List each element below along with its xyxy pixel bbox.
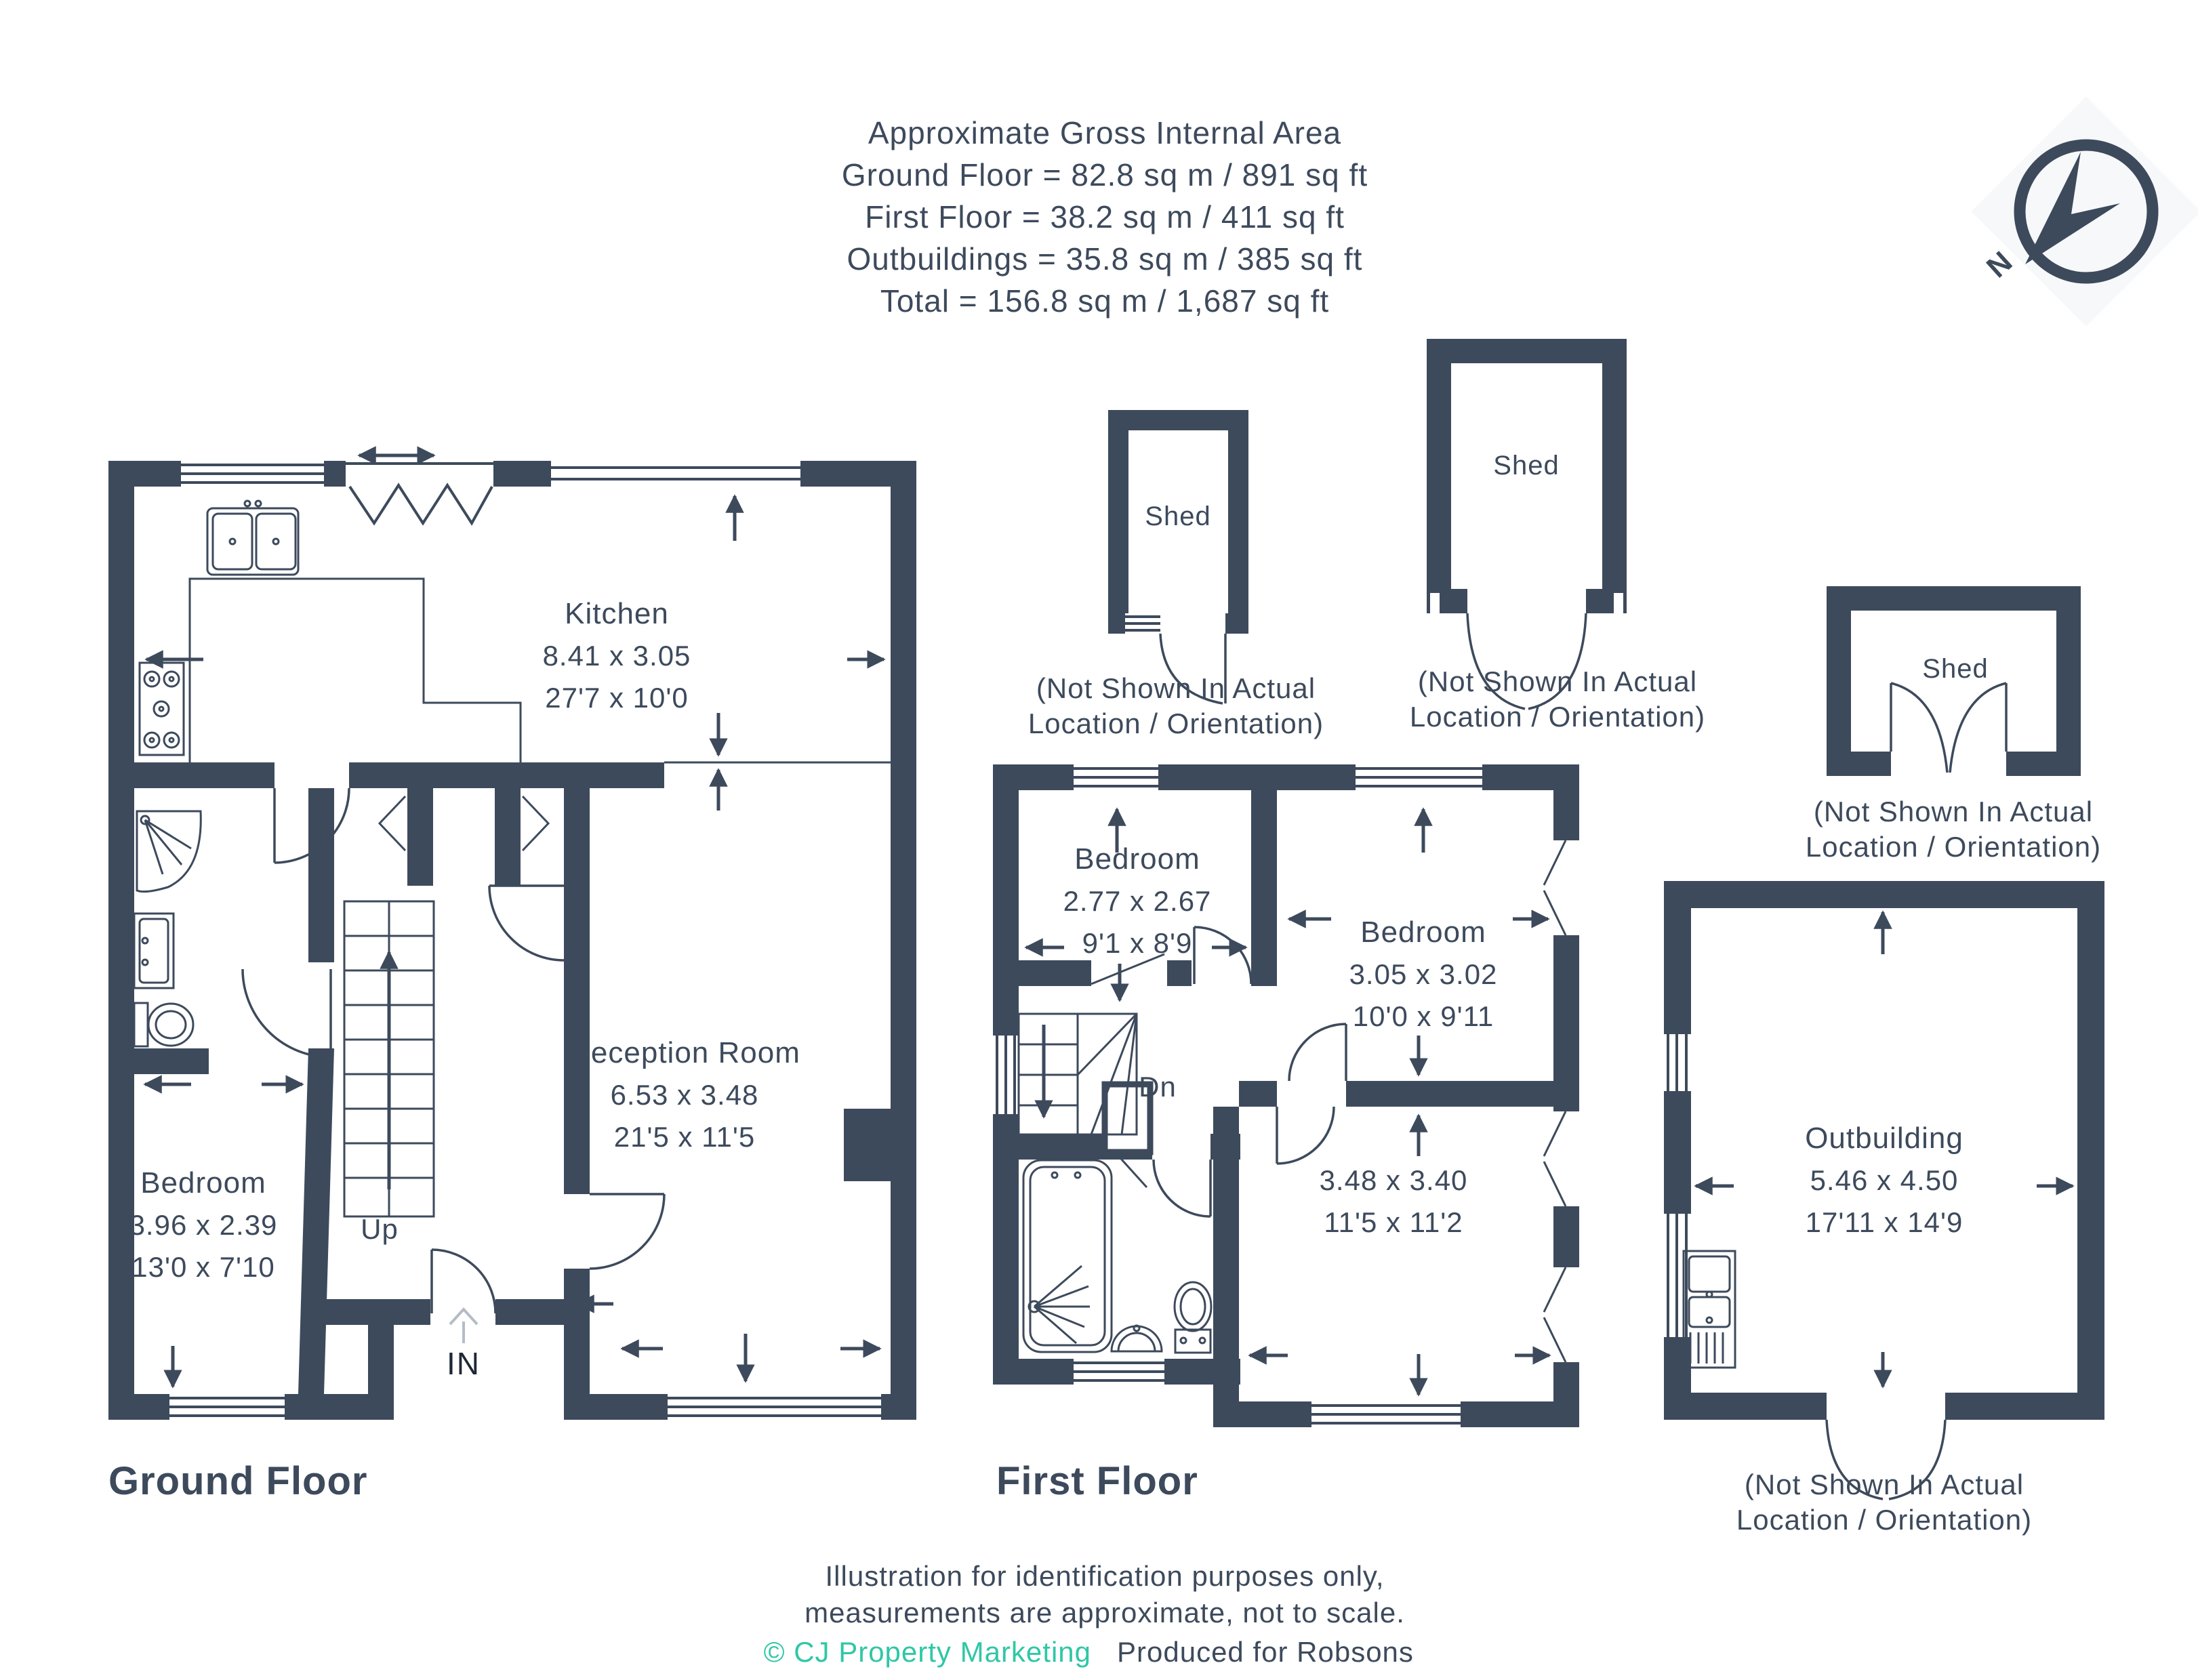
reception-label: Reception Room <box>569 1036 800 1069</box>
footer-line-2: measurements are approximate, not to sca… <box>805 1597 1405 1628</box>
bifold-door <box>523 796 548 851</box>
gf-bedroom-label: Bedroom <box>140 1166 266 1200</box>
entrance-door-arc <box>432 1250 495 1313</box>
ff-bedroom-small-imperial: 9'1 x 8'9 <box>1082 927 1193 959</box>
kitchen-sink <box>207 501 298 575</box>
ff-bedroom-small-metric: 2.77 x 2.67 <box>1063 885 1212 917</box>
ff-bedroom-large-label: Bedroom <box>1360 916 1486 949</box>
door-arc <box>243 969 331 1057</box>
footer-disclaimer: Illustration for identification purposes… <box>764 1560 1414 1668</box>
casement-window <box>1544 1111 1579 1206</box>
kitchen-imperial: 27'7 x 10'0 <box>545 682 689 714</box>
outbuilding-caption-1: (Not Shown In Actual <box>1745 1469 2024 1500</box>
entrance-in-arrow <box>450 1309 477 1343</box>
footer-produced-for: Produced for Robsons <box>1117 1636 1414 1668</box>
kitchen-counter <box>190 579 521 762</box>
window <box>1664 1214 1691 1337</box>
gf-bedroom-metric: 3.96 x 2.39 <box>129 1209 278 1241</box>
casement-window <box>1544 1267 1579 1362</box>
ff-bedroom-large-metric: 3.05 x 3.02 <box>1349 958 1498 990</box>
door-arc <box>1194 927 1251 984</box>
header-line-total: Total = 156.8 sq m / 1,687 sq ft <box>880 283 1329 319</box>
window <box>1356 764 1482 790</box>
stairs-down-label: Dn <box>1139 1071 1177 1103</box>
window <box>993 1036 1019 1114</box>
ff-bedroom-small-label: Bedroom <box>1074 842 1200 876</box>
door-arc <box>1289 1024 1346 1081</box>
window <box>1664 1034 1691 1091</box>
door-arc <box>1154 1160 1210 1216</box>
door-arc <box>489 886 564 960</box>
shed-3-label: Shed <box>1922 654 1988 684</box>
window <box>169 1394 285 1420</box>
shed-2-label: Shed <box>1493 451 1559 480</box>
window <box>181 461 324 487</box>
header-line-outbuildings: Outbuildings = 35.8 sq m / 385 sq ft <box>847 241 1363 276</box>
bathroom-sink-icon <box>1112 1326 1162 1351</box>
footer-line-1: Illustration for identification purposes… <box>826 1560 1385 1592</box>
folding-door <box>346 461 493 523</box>
bathroom-sink-icon <box>134 914 174 988</box>
outbuilding-label: Outbuilding <box>1805 1122 1963 1155</box>
shed-2-caption-1: (Not Shown In Actual <box>1418 665 1697 697</box>
window <box>1074 1359 1164 1385</box>
compass-icon: N <box>1971 96 2198 326</box>
toilet-icon <box>1175 1282 1211 1353</box>
reception-metric: 6.53 x 3.48 <box>611 1079 759 1111</box>
door-arc <box>590 1194 664 1269</box>
chimney-breast <box>844 1109 891 1181</box>
bathtub-icon <box>1023 1160 1112 1352</box>
outbuilding-imperial: 17'11 x 14'9 <box>1806 1206 1963 1238</box>
header-line-ground: Ground Floor = 82.8 sq m / 891 sq ft <box>842 157 1368 192</box>
window <box>1074 764 1158 790</box>
shed-1: Shed (Not Shown In Actual Location / Ori… <box>1028 410 1324 739</box>
window <box>668 1394 881 1420</box>
gf-bedroom-imperial: 13'0 x 7'10 <box>131 1251 275 1283</box>
ff-room-metric: 3.48 x 3.40 <box>1320 1164 1468 1196</box>
stairs-up-label: Up <box>361 1213 399 1245</box>
outbuilding-metric: 5.46 x 4.50 <box>1810 1164 1959 1196</box>
ff-room-imperial: 11'5 x 11'2 <box>1324 1206 1463 1238</box>
door-arc <box>1277 1107 1334 1164</box>
toilet-icon <box>134 1003 193 1046</box>
shed-1-caption-2: Location / Orientation) <box>1028 708 1324 739</box>
shed-2: Shed (Not Shown In Actual Location / Ori… <box>1410 339 1705 733</box>
sliding-door <box>551 461 800 487</box>
shed-1-caption-1: (Not Shown In Actual <box>1036 672 1316 704</box>
casement-window <box>1544 840 1579 935</box>
header-title: Approximate Gross Internal Area <box>868 115 1341 150</box>
first-floor-plan: Dn <box>993 764 1579 1503</box>
header-line-first: First Floor = 38.2 sq m / 411 sq ft <box>865 199 1345 234</box>
shed-1-label: Shed <box>1145 501 1210 531</box>
shed-3-caption-1: (Not Shown In Actual <box>1814 796 2093 827</box>
kitchen-metric: 8.41 x 3.05 <box>543 640 691 672</box>
ground-floor-title: Ground Floor <box>108 1459 368 1503</box>
outbuilding-plan: Outbuilding 5.46 x 4.50 17'11 x 14'9 (No… <box>1664 881 2104 1536</box>
shed-3: Shed (Not Shown In Actual Location / Ori… <box>1806 586 2101 863</box>
shed-2-caption-2: Location / Orientation) <box>1410 701 1705 733</box>
window <box>1125 613 1160 634</box>
outbuilding-sink <box>1684 1251 1735 1368</box>
reception-imperial: 21'5 x 11'5 <box>614 1121 755 1153</box>
ground-floor-plan: Up IN Kitchen 8.41 x 3.05 27'7 <box>108 455 916 1503</box>
shower-icon <box>137 811 201 892</box>
dimension-arrows-ground <box>145 455 884 1387</box>
hob-icon <box>140 663 184 755</box>
bifold-door <box>380 796 405 851</box>
outbuilding-caption-2: Location / Orientation) <box>1736 1504 2032 1536</box>
closet <box>1091 954 1164 1000</box>
first-floor-title: First Floor <box>996 1459 1198 1503</box>
kitchen-label: Kitchen <box>565 597 669 630</box>
shed-3-caption-2: Location / Orientation) <box>1806 831 2101 863</box>
stairs-up <box>344 901 434 1216</box>
ff-bedroom-large-imperial: 10'0 x 9'11 <box>1353 1000 1494 1032</box>
entrance-in-label: IN <box>447 1346 481 1381</box>
floorplan-canvas: Approximate Gross Internal Area Ground F… <box>0 0 2198 1680</box>
header-area-summary: Approximate Gross Internal Area Ground F… <box>842 115 1368 319</box>
window <box>1311 1401 1461 1427</box>
footer-copyright: © CJ Property Marketing <box>764 1636 1091 1668</box>
